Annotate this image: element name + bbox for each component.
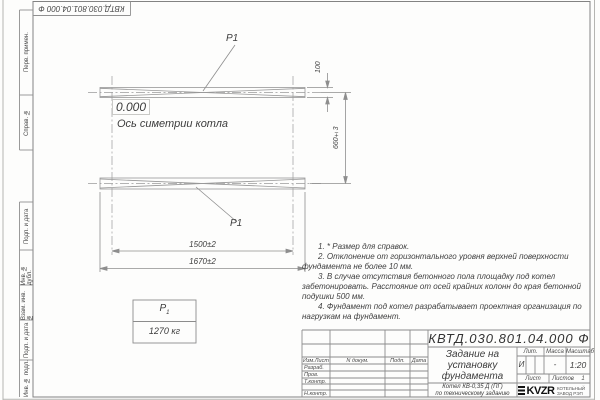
note-3: 3. В случае отсутствия бетонного пола пл… bbox=[302, 272, 584, 302]
change-col-podp: Подп. bbox=[385, 358, 410, 364]
load-symbol-subscript: 1 bbox=[166, 310, 169, 316]
drawing-sheet: КВТД.030.801.04.000 Ф Перв. примен. Спра… bbox=[0, 0, 600, 400]
kvzr-logo-text: KVZR bbox=[527, 385, 555, 397]
dim-outer-span: 1670±2 bbox=[100, 257, 305, 266]
note-2: 2. Отклонение от горизонтального уровня … bbox=[302, 252, 584, 272]
top-rotated-doc-number: КВТД.030.801.04.000 Ф bbox=[33, 2, 130, 15]
symmetry-axis-label: Ось симетрии котла bbox=[117, 118, 228, 130]
load-symbol: Р1 bbox=[133, 303, 196, 316]
load-value: 1270 кг bbox=[133, 326, 196, 336]
sheets-label: Листов bbox=[549, 376, 577, 382]
role-developed: Разраб. bbox=[304, 365, 324, 371]
change-col-data: Дата bbox=[410, 358, 428, 364]
role-tcontrol: Т.контр. bbox=[304, 379, 326, 385]
stamp-inv-dubl: Инв. № дубл. bbox=[20, 250, 34, 285]
kvzr-logo: KVZR КОТЕЛЬНЫЙ ЗАВОД РЭП bbox=[518, 385, 589, 397]
lit-label: Лит. bbox=[517, 349, 544, 355]
dim-beam-width: 100 bbox=[313, 55, 324, 79]
lit-value: И bbox=[517, 360, 526, 369]
title-block-title: Задание на установку фундамента bbox=[429, 349, 516, 382]
kvzr-caption-line2: ЗАВОД РЭП bbox=[557, 391, 585, 396]
dim-beam-spacing: 660±3 bbox=[331, 114, 342, 162]
stamp-perv-primen: Перв. примен. bbox=[20, 10, 34, 95]
mass-label: Масса bbox=[544, 349, 566, 355]
role-checked: Пров. bbox=[304, 372, 319, 378]
sheets-value: 1 bbox=[577, 376, 589, 382]
notes-block: 1. * Размер для справок. 2. Отклонение о… bbox=[302, 242, 584, 322]
kvzr-logo-icon bbox=[518, 386, 525, 396]
change-col-izm-list: Изм.Лист bbox=[302, 358, 330, 364]
note-1: 1. * Размер для справок. bbox=[302, 242, 584, 252]
stamp-vzam-inv: Взам. инв. № bbox=[20, 285, 34, 320]
load-point-label-bottom: Р1 bbox=[230, 218, 242, 229]
product-name-line2: по техническому заданию bbox=[429, 391, 516, 398]
scale-value: 1:20 bbox=[566, 360, 590, 370]
stamp-inv-podl: Инв. № подл. bbox=[20, 360, 34, 397]
level-mark: 0.000 bbox=[112, 99, 150, 115]
sheet-label: Лист bbox=[517, 376, 549, 382]
dim-inner-span: 1500±2 bbox=[112, 240, 293, 249]
title-block-doc-number: КВТД.030.801.04.000 Ф bbox=[428, 331, 590, 346]
stamp-podp-data-2: Подп. и дата bbox=[20, 320, 34, 360]
product-name-line1: Котел КВ-0,35 Д (ПГ) bbox=[429, 384, 516, 391]
change-col-docnum: N докум. bbox=[330, 358, 385, 364]
mass-value: - bbox=[544, 360, 566, 369]
stamp-podp-data-1: Подп. и дата bbox=[20, 202, 34, 250]
note-4: 4. Фундамент под котел разрабатывает про… bbox=[302, 302, 584, 322]
scale-label: Масштаб bbox=[566, 349, 590, 355]
kvzr-logo-caption: КОТЕЛЬНЫЙ ЗАВОД РЭП bbox=[557, 386, 585, 396]
stamp-sprav-no: Справ. № bbox=[20, 95, 34, 150]
role-ncontrol: Н.контр. bbox=[304, 391, 327, 397]
load-point-label-top: Р1 bbox=[226, 33, 238, 44]
leader-lines bbox=[196, 45, 237, 222]
